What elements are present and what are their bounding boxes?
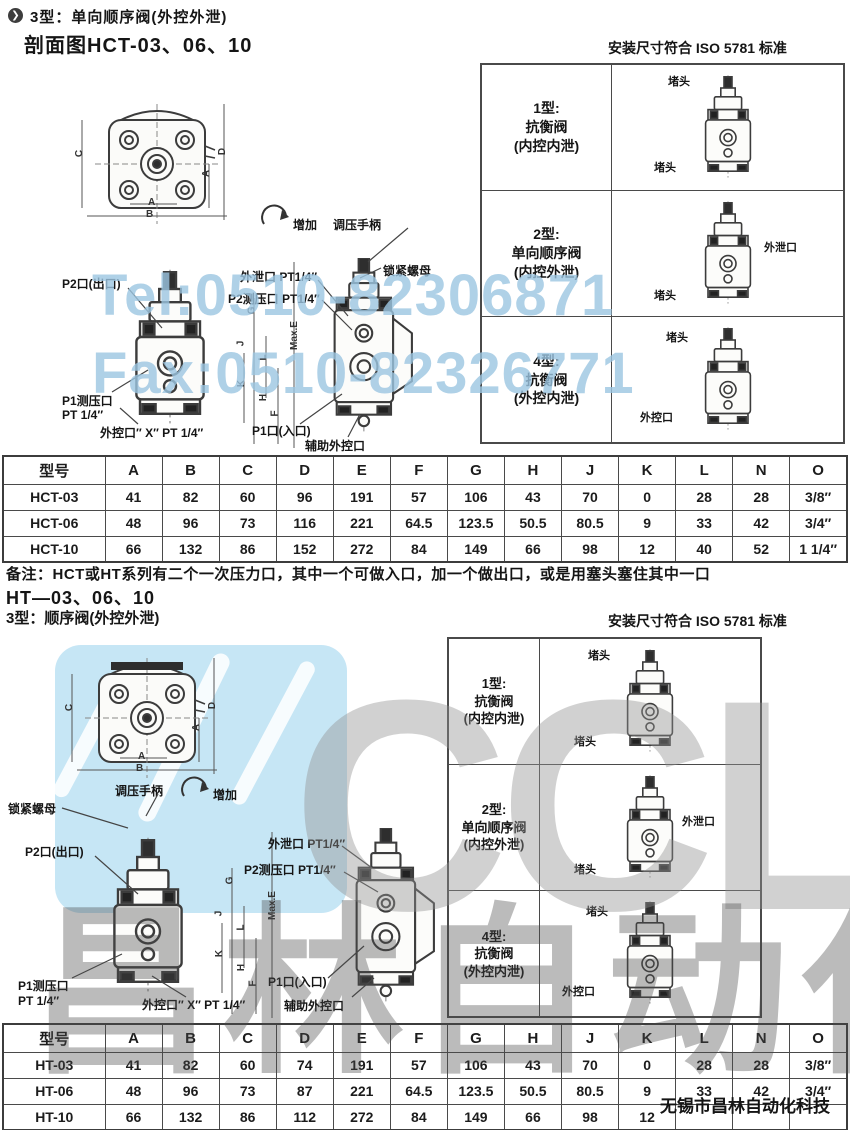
type2-line3: (内控外泄) (464, 836, 525, 854)
model-cell: HCT-06 (3, 510, 105, 536)
type4-valve-drawing (610, 901, 690, 1007)
dim-label-b: B (136, 763, 143, 774)
dim-label-h: H (258, 394, 269, 401)
model-cell: HT-03 (3, 1052, 105, 1078)
dimension-cell: 64.5 (390, 510, 447, 536)
column-header: H (504, 1024, 561, 1052)
column-header: A (105, 1024, 162, 1052)
section1-title: 剖面图HCT-03、06、10 (24, 29, 252, 58)
column-header: L (676, 456, 733, 484)
dim-label-a: A (201, 170, 212, 177)
column-header: B (162, 1024, 219, 1052)
p2-out-label: P2口(出口) (25, 843, 84, 860)
column-header: O (790, 456, 847, 484)
table-row: HCT-0341826096191571064370028283/8″ (3, 484, 847, 510)
dimension-cell: 98 (562, 536, 619, 562)
ht-side-view-drawing (330, 828, 448, 1016)
dimension-cell: 41 (105, 484, 162, 510)
dimension-cell: 191 (333, 1052, 390, 1078)
dimension-cell: 28 (733, 484, 790, 510)
dimension-cell: 40 (676, 536, 733, 562)
type1-figure: 堵头 堵头 (540, 639, 760, 764)
dimension-cell: 87 (276, 1078, 333, 1104)
dim-label-a2: A (148, 197, 155, 208)
hct-top-view-dims (82, 196, 232, 226)
column-header: A (105, 456, 162, 484)
column-header: L (676, 1024, 733, 1052)
type2-line2: 单向顺序阀 (512, 244, 582, 263)
section-bullet-icon: ❯ (8, 8, 23, 23)
dimension-cell: 74 (276, 1052, 333, 1078)
dimension-cell: 48 (105, 1078, 162, 1104)
dimension-cell: 3/8″ (790, 484, 847, 510)
dimension-cell: 84 (390, 536, 447, 562)
model-cell: HCT-03 (3, 484, 105, 510)
p1-in-label: P1口(入口) (252, 422, 311, 439)
drain-callout: 外泄口 (682, 813, 715, 829)
dimension-cell: 96 (162, 1078, 219, 1104)
dimension-cell: 43 (504, 1052, 561, 1078)
dimension-cell: 112 (276, 1104, 333, 1130)
increase-arrow-icon (178, 772, 212, 800)
model-cell: HT-10 (3, 1104, 105, 1130)
plug-callout-bottom: 堵头 (654, 287, 676, 303)
dimension-cell: 9 (619, 510, 676, 536)
type2-line2: 单向顺序阀 (461, 819, 526, 837)
hct-front-view-drawing (110, 250, 230, 448)
type4-figure: 堵头 外控口 (612, 317, 843, 443)
dimension-cell: 12 (619, 536, 676, 562)
column-header: K (619, 1024, 676, 1052)
note-text: 备注：HCT或HT系列有二个一次压力口，其中一个可做入口，加一个做出口，或是用塞… (6, 563, 710, 584)
plug-callout-top: 堵头 (586, 903, 608, 919)
type1-label: 1型: 抗衡阀 (内控内泄) (449, 639, 540, 764)
dimension-cell: 221 (333, 510, 390, 536)
type2-label: 2型: 单向顺序阀 (内控外泄) (449, 765, 540, 890)
type1-label: 1型: 抗衡阀 (内控内泄) (482, 65, 612, 190)
type1-line1: 1型: (533, 99, 559, 118)
plug-callout-bottom: 堵头 (654, 159, 676, 175)
panel-row-type4: 4型: 抗衡阀 (外控内泄) 堵头 外控口 (449, 891, 760, 1017)
dimension-cell: 57 (390, 1052, 447, 1078)
dim-label-l: L (258, 354, 269, 360)
section2-title: 3型：顺序阀(外控外泄) (6, 607, 159, 628)
type4-line2: 抗衡阀 (526, 371, 568, 390)
dim-label-g: G (246, 307, 257, 315)
dimension-cell: 52 (733, 536, 790, 562)
type2-line1: 2型: (482, 801, 507, 819)
dimension-cell: 66 (504, 1104, 561, 1130)
type2-label: 2型: 单向顺序阀 (内控外泄) (482, 191, 612, 316)
dimension-cell: 80.5 (562, 510, 619, 536)
section1-standard: 安装尺寸符合 ISO 5781 标准 (608, 38, 787, 58)
type4-line1: 4型: (482, 928, 507, 946)
blob-streak (228, 659, 317, 808)
dimension-cell: 3/8″ (790, 1052, 847, 1078)
p1-in-label: P1口(入口) (268, 973, 327, 990)
section2-standard: 安装尺寸符合 ISO 5781 标准 (608, 611, 787, 631)
plug-callout-bottom: 堵头 (574, 733, 596, 749)
plug-callout-top: 堵头 (588, 647, 610, 663)
model-cell: HCT-10 (3, 536, 105, 562)
handle-label: 调压手柄 (333, 216, 381, 233)
column-header: 型号 (3, 1024, 105, 1052)
type1-line2: 抗衡阀 (474, 693, 513, 711)
dim-label-b: B (146, 209, 153, 220)
dimension-cell: 82 (162, 484, 219, 510)
dimension-cell: 106 (447, 1052, 504, 1078)
dimension-cell: 82 (162, 1052, 219, 1078)
dimension-cell: 50.5 (504, 510, 561, 536)
dimension-cell: 28 (676, 1052, 733, 1078)
ext-ctrl-callout: 外控口 (562, 983, 595, 999)
column-header: H (504, 456, 561, 484)
type1-line1: 1型: (482, 675, 507, 693)
company-name: 无锡市昌林自动化科技 (660, 1092, 830, 1117)
column-header: K (619, 456, 676, 484)
dimension-cell: 33 (676, 510, 733, 536)
dim-label-k: K (214, 950, 225, 957)
increase-label: 增加 (213, 786, 237, 803)
column-header: G (447, 456, 504, 484)
dim-label-maxe: Max.E (289, 321, 300, 350)
column-header: D (276, 1024, 333, 1052)
dimension-cell: 70 (562, 484, 619, 510)
dimension-cell: 132 (162, 1104, 219, 1130)
page-title: 3型：单向顺序阀(外控外泄) (30, 6, 227, 27)
p1-gauge-label-1: P1测压口 (62, 392, 113, 409)
column-header: J (562, 456, 619, 484)
column-header: N (733, 1024, 790, 1052)
dim-label-d: D (217, 148, 228, 155)
dimension-cell: 116 (276, 510, 333, 536)
dimension-cell: 50.5 (504, 1078, 561, 1104)
dimension-cell: 0 (619, 484, 676, 510)
dimension-cell: 48 (105, 510, 162, 536)
increase-label: 增加 (293, 216, 317, 233)
p1-gauge-label-1: P1测压口 (18, 977, 69, 994)
column-header: J (562, 1024, 619, 1052)
p2-gauge-label: P2测压口 PT1/4″ (228, 290, 320, 307)
type2-valve-drawing (688, 201, 768, 307)
p1-gauge-label-2: PT 1/4″ (62, 408, 103, 422)
type4-line3: (外控内泄) (514, 389, 579, 408)
column-header: 型号 (3, 456, 105, 484)
dim-label-k: K (236, 380, 247, 387)
dimension-cell: 57 (390, 484, 447, 510)
dimension-cell: 272 (333, 1104, 390, 1130)
type1-valve-drawing (688, 75, 768, 181)
ext-ctrl-label: 外控口″ X″ PT 1/4″ (100, 424, 203, 441)
plug-callout-bottom: 堵头 (574, 861, 596, 877)
dimension-cell: 73 (219, 510, 276, 536)
type4-figure: 堵头 外控口 (540, 891, 760, 1017)
dimension-cell: 86 (219, 536, 276, 562)
dimension-cell: 96 (162, 510, 219, 536)
column-header: E (333, 456, 390, 484)
dimension-cell: 73 (219, 1078, 276, 1104)
column-header: C (219, 456, 276, 484)
panel-row-type1: 1型: 抗衡阀 (内控内泄) 堵头 堵头 (449, 639, 760, 765)
plug-callout-top: 堵头 (666, 329, 688, 345)
dimension-cell: 3/4″ (790, 510, 847, 536)
table-header-row: 型号ABCDEFGHJKLNO (3, 456, 847, 484)
table-row: HT-0341826074191571064370028283/8″ (3, 1052, 847, 1078)
dimension-cell: 272 (333, 536, 390, 562)
dimension-cell: 106 (447, 484, 504, 510)
dimension-cell: 66 (105, 536, 162, 562)
dim-label-f: F (270, 410, 281, 416)
type2-figure: 外泄口 堵头 (612, 191, 843, 316)
handle-label: 调压手柄 (115, 782, 163, 799)
drain-port-label: 外泄口 PT1/4″ (240, 268, 317, 285)
increase-arrow-icon (258, 200, 292, 228)
p2-out-label: P2口(出口) (62, 275, 121, 292)
dimension-cell: 132 (162, 536, 219, 562)
dimension-cell: 28 (733, 1052, 790, 1078)
type4-label: 4型: 抗衡阀 (外控内泄) (449, 891, 540, 1017)
dim-label-f: F (248, 980, 259, 986)
type4-line3: (外控内泄) (464, 963, 525, 981)
type1-valve-drawing (610, 649, 690, 755)
panel-row-type2: 2型: 单向顺序阀 (内控外泄) 外泄口 堵头 (449, 765, 760, 891)
dim-label-d: D (207, 702, 218, 709)
type2-valve-drawing (610, 775, 690, 881)
type1-line2: 抗衡阀 (526, 118, 568, 137)
ext-ctrl-callout: 外控口 (640, 409, 673, 425)
column-header: O (790, 1024, 847, 1052)
type1-figure: 堵头 堵头 (612, 65, 843, 190)
dimension-cell: 66 (105, 1104, 162, 1130)
panel-row-type2: 2型: 单向顺序阀 (内控外泄) 外泄口 堵头 (482, 191, 843, 317)
drain-port-label: 外泄口 PT1/4″ (268, 835, 345, 852)
type2-line3: (内控外泄) (514, 263, 579, 282)
dimension-cell: 98 (562, 1104, 619, 1130)
column-header: N (733, 456, 790, 484)
dimension-cell: 60 (219, 484, 276, 510)
dimension-cell: 152 (276, 536, 333, 562)
dimension-cell: 60 (219, 1052, 276, 1078)
table-row: HCT-1066132861522728414966981240521 1/4″ (3, 536, 847, 562)
dimension-cell: 64.5 (390, 1078, 447, 1104)
dimension-cell: 149 (447, 1104, 504, 1130)
table-header-row: 型号ABCDEFGHJKLNO (3, 1024, 847, 1052)
dim-label-c: C (64, 704, 75, 711)
catalog-page: ❯ 3型：单向顺序阀(外控外泄) 剖面图HCT-03、06、10 安装尺寸符合 … (0, 0, 850, 1130)
type4-valve-drawing (688, 327, 768, 433)
hct-dimension-table: 型号ABCDEFGHJKLNOHCT-034182609619157106437… (2, 455, 848, 563)
drain-callout: 外泄口 (764, 239, 797, 255)
lock-nut-label: 锁紧螺母 (383, 262, 431, 279)
dimension-cell: 123.5 (447, 510, 504, 536)
aux-ctrl-label: 辅助外控口 (305, 437, 365, 454)
dimension-cell: 41 (105, 1052, 162, 1078)
dim-label-a: A (191, 724, 202, 731)
dimension-cell: 96 (276, 484, 333, 510)
aux-ctrl-label: 辅助外控口 (284, 997, 344, 1014)
column-header: C (219, 1024, 276, 1052)
column-header: D (276, 456, 333, 484)
dim-label-g: G (224, 877, 235, 885)
column-header: G (447, 1024, 504, 1052)
plug-callout-top: 堵头 (668, 73, 690, 89)
ext-ctrl-label: 外控口″ X″ PT 1/4″ (142, 996, 245, 1013)
dim-label-j: J (213, 911, 224, 917)
column-header: B (162, 456, 219, 484)
ht-front-view-drawing (88, 818, 208, 1016)
dimension-cell: 84 (390, 1104, 447, 1130)
column-header: F (390, 1024, 447, 1052)
dim-label-j: J (235, 341, 246, 347)
dim-label-h: H (236, 964, 247, 971)
dim-label-c: C (74, 150, 85, 157)
type1-line3: (内控内泄) (514, 137, 579, 156)
dim-label-a2: A (138, 751, 145, 762)
panel-row-type1: 1型: 抗衡阀 (内控内泄) 堵头 堵头 (482, 65, 843, 191)
dimension-cell: 28 (676, 484, 733, 510)
type2-figure: 外泄口 堵头 (540, 765, 760, 890)
dimension-cell: 0 (619, 1052, 676, 1078)
column-header: F (390, 456, 447, 484)
type4-label: 4型: 抗衡阀 (外控内泄) (482, 317, 612, 443)
iso-type-panel-hct: 1型: 抗衡阀 (内控内泄) 堵头 堵头 2型: 单向顺序阀 (内控外泄) 外泄… (480, 63, 845, 444)
type2-line1: 2型: (533, 225, 559, 244)
dimension-cell: 80.5 (562, 1078, 619, 1104)
table-row: HCT-0648967311622164.5123.550.580.593342… (3, 510, 847, 536)
dimension-cell: 43 (504, 484, 561, 510)
dimension-cell: 221 (333, 1078, 390, 1104)
dim-label-l: L (236, 924, 247, 930)
dimension-cell: 1 1/4″ (790, 536, 847, 562)
dimension-cell: 86 (219, 1104, 276, 1130)
type4-line1: 4型: (533, 352, 559, 371)
hct-side-view-drawing (308, 258, 426, 446)
p2-gauge-label: P2测压口 PT1/4″ (244, 861, 336, 878)
dimension-cell: 191 (333, 484, 390, 510)
lock-nut-label: 锁紧螺母 (8, 800, 56, 817)
dimension-cell: 123.5 (447, 1078, 504, 1104)
model-cell: HT-06 (3, 1078, 105, 1104)
type1-line3: (内控内泄) (464, 710, 525, 728)
p1-gauge-label-2: PT 1/4″ (18, 994, 59, 1008)
iso-type-panel-ht: 1型: 抗衡阀 (内控内泄) 堵头 堵头 2型: 单向顺序阀 (内控外泄) 外泄… (447, 637, 762, 1018)
dimension-cell: 70 (562, 1052, 619, 1078)
dimension-cell: 66 (504, 536, 561, 562)
type4-line2: 抗衡阀 (474, 945, 513, 963)
column-header: E (333, 1024, 390, 1052)
panel-row-type4: 4型: 抗衡阀 (外控内泄) 堵头 外控口 (482, 317, 843, 443)
dimension-cell: 42 (733, 510, 790, 536)
dim-label-maxe: Max.E (267, 891, 278, 920)
dimension-cell: 149 (447, 536, 504, 562)
